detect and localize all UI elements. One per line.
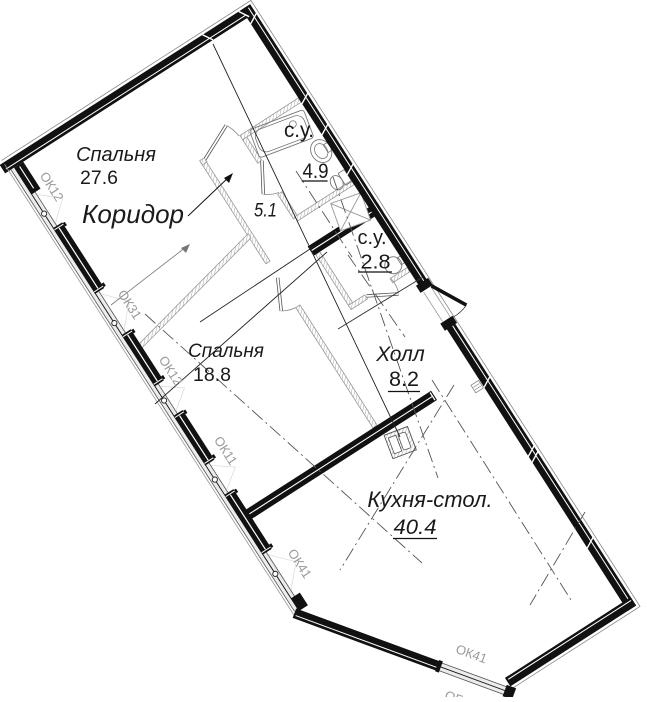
- svg-text:18.8: 18.8: [193, 364, 231, 386]
- svg-text:5.1: 5.1: [254, 201, 277, 222]
- svg-text:с.у.: с.у.: [357, 227, 386, 249]
- svg-text:Коридор: Коридор: [82, 199, 184, 229]
- svg-text:Кухня-стол.: Кухня-стол.: [367, 487, 492, 512]
- svg-text:с.у.: с.у.: [284, 119, 314, 142]
- svg-text:Спальня: Спальня: [188, 341, 264, 362]
- svg-text:Холл: Холл: [375, 343, 425, 366]
- svg-text:Спальня: Спальня: [76, 144, 156, 166]
- svg-text:27.6: 27.6: [80, 167, 118, 189]
- svg-text:8.2: 8.2: [389, 368, 419, 391]
- svg-text:4.9: 4.9: [303, 160, 329, 183]
- svg-text:40.4: 40.4: [394, 515, 437, 539]
- svg-text:2.8: 2.8: [361, 252, 391, 274]
